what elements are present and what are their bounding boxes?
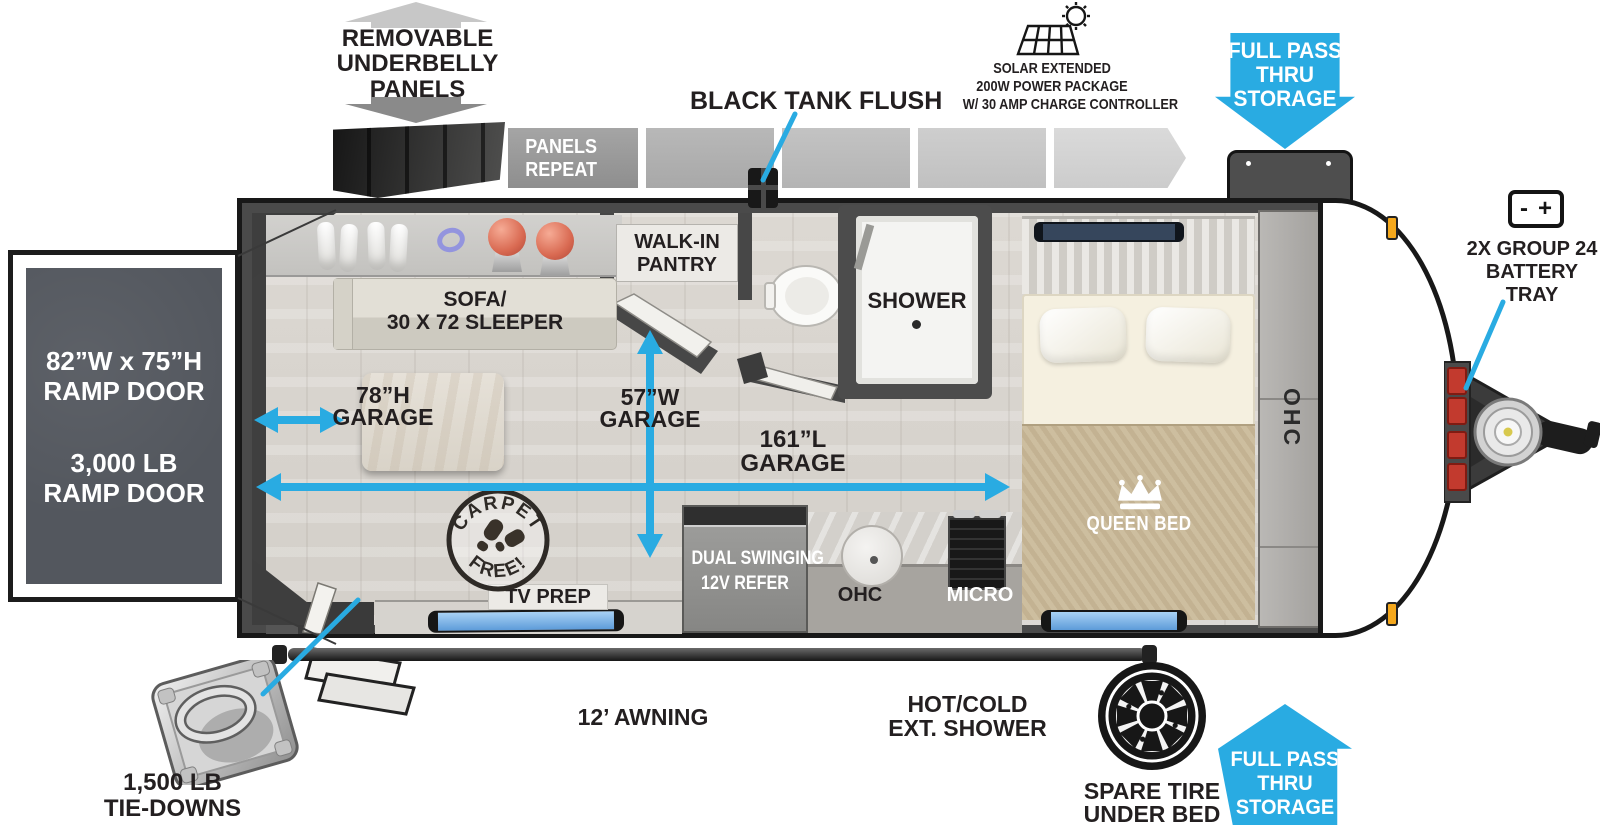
carpet-free-stamp-icon: CARPET FREE! bbox=[444, 486, 552, 594]
boot-item bbox=[389, 224, 408, 273]
battery-icon: - + bbox=[1508, 190, 1564, 228]
ramp-door-size-label: 82”W x 75”H RAMP DOOR bbox=[22, 346, 226, 406]
toilet-seat bbox=[785, 277, 829, 315]
valve-detail bbox=[761, 168, 766, 208]
walk-in-pantry: WALK-IN PANTRY bbox=[616, 224, 738, 282]
stove-handle bbox=[979, 510, 1001, 518]
crown-icon bbox=[1111, 474, 1169, 514]
battery-boxes bbox=[1444, 358, 1478, 508]
ramp-door-panel bbox=[26, 268, 222, 584]
full-pass-thru-up-arrow-icon: FULL PASS THRU STORAGE bbox=[1218, 704, 1352, 825]
pantry-label: WALK-IN PANTRY bbox=[617, 225, 737, 277]
panels-repeat-box-4 bbox=[918, 128, 1046, 188]
kitchen-ohc-label: OHC bbox=[820, 585, 900, 606]
battery-minus: - bbox=[1520, 195, 1528, 223]
sofa-label: SOFA/ 30 X 72 SLEEPER bbox=[350, 288, 600, 334]
floorplan-canvas: REMOVABLE UNDERBELLY PANELS PANELS REPEA… bbox=[0, 0, 1600, 825]
entry-step-2 bbox=[319, 674, 414, 714]
full-pass-thru-top-label: FULL PASS THRU STORAGE bbox=[1219, 33, 1352, 111]
garage-height-label: 78”H GARAGE bbox=[330, 384, 436, 428]
boot-item bbox=[339, 224, 358, 273]
stove-handle bbox=[953, 510, 975, 518]
garage-length-label: 161”L GARAGE bbox=[736, 428, 850, 476]
spare-tire-icon bbox=[1097, 661, 1207, 771]
screw-dot bbox=[1246, 161, 1251, 166]
marker-light bbox=[1386, 602, 1398, 626]
queen-bed-label: QUEEN BED bbox=[1075, 514, 1203, 535]
rear-wall bbox=[252, 213, 266, 625]
bed-top-window bbox=[1034, 222, 1184, 242]
screw-dot bbox=[1326, 161, 1331, 166]
exterior-shower-label: HOT/COLD EXT. SHOWER bbox=[870, 692, 1065, 740]
tv-window bbox=[428, 609, 624, 633]
awning-label: 12’ AWNING bbox=[558, 705, 728, 729]
fridge-top bbox=[684, 507, 806, 527]
bed-bottom-window bbox=[1041, 610, 1187, 632]
panels-repeat-label: PANELS REPEAT bbox=[515, 128, 632, 182]
battery-plus: + bbox=[1538, 195, 1552, 223]
panels-repeat-box-1: PANELS REPEAT bbox=[508, 128, 638, 188]
panels-repeat-arrow-box bbox=[1054, 128, 1186, 188]
bed-pillow bbox=[1039, 307, 1127, 364]
cabinet-seam bbox=[1260, 546, 1320, 548]
awning-rail bbox=[288, 648, 1146, 661]
entry-door-recess bbox=[298, 602, 374, 634]
stove-unit bbox=[948, 516, 1006, 590]
shower-drain bbox=[912, 320, 921, 329]
ramp-door-rating-label: 3,000 LB RAMP DOOR bbox=[22, 448, 226, 508]
marker-light bbox=[1386, 216, 1398, 240]
front-ohc-cabinet: OHC bbox=[1258, 210, 1322, 628]
kitchen-sink bbox=[841, 525, 903, 587]
solar-panel-icon bbox=[1012, 2, 1094, 60]
entry-door-side-cabinet bbox=[266, 602, 300, 634]
black-tank-flush-valve bbox=[748, 168, 778, 208]
boot-item bbox=[317, 222, 336, 271]
full-pass-thru-bottom-label: FULL PASS THRU STORAGE bbox=[1221, 748, 1348, 820]
helmet-item bbox=[536, 222, 574, 260]
front-ohc-label: OHC bbox=[1278, 388, 1305, 448]
garage-width-label: 57”W GARAGE bbox=[597, 386, 703, 430]
panels-repeat-box-3 bbox=[782, 128, 910, 188]
helmet-item bbox=[488, 218, 526, 256]
front-cap bbox=[1318, 198, 1460, 638]
tie-downs-label: 1,500 LB TIE-DOWNS bbox=[90, 770, 255, 822]
black-tank-flush-label: BLACK TANK FLUSH bbox=[690, 88, 920, 115]
refrigerator-label: DUAL SWINGING 12V REFER bbox=[691, 546, 798, 596]
toilet bbox=[769, 265, 843, 327]
microwave-label: MICRO bbox=[940, 585, 1020, 606]
boot-item bbox=[367, 222, 386, 271]
sink-drain bbox=[870, 556, 878, 564]
bed-pillow bbox=[1145, 307, 1231, 364]
shower-label: SHOWER bbox=[855, 289, 979, 312]
solar-package-label: SOLAR EXTENDED 200W POWER PACKAGE W/ 30 … bbox=[963, 60, 1142, 114]
full-pass-thru-down-arrow-icon: FULL PASS THRU STORAGE bbox=[1215, 33, 1355, 149]
tie-down-ring-icon bbox=[140, 660, 310, 785]
toilet-tank bbox=[764, 282, 776, 310]
battery-tray-label: 2X GROUP 24 BATTERY TRAY bbox=[1462, 238, 1600, 307]
ramp-door bbox=[8, 250, 240, 602]
underbelly-label: REMOVABLE UNDERBELLY PANELS bbox=[320, 26, 515, 102]
underbelly-panel-graphic bbox=[333, 122, 505, 198]
spare-tire-label: SPARE TIRE UNDER BED bbox=[1072, 780, 1232, 825]
